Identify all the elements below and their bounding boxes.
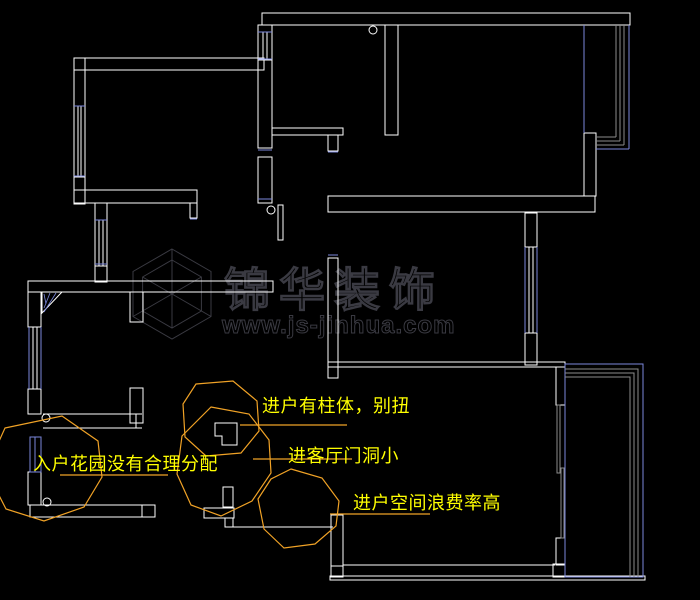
- annotation-door-small: 进客厅门洞小: [288, 446, 399, 466]
- annotation-column: 进户有柱体，别扭: [262, 396, 410, 416]
- cad-viewport[interactable]: 锦华装饰 www.js-jinhua.com: [0, 0, 700, 600]
- floor-plan-canvas[interactable]: 锦华装饰 www.js-jinhua.com: [0, 0, 700, 600]
- watermark-brand: 锦华装饰: [224, 264, 444, 316]
- annotation-entry-garden: 入户花园没有合理分配: [33, 454, 218, 474]
- annotation-space-waste: 进户空间浪费率高: [353, 493, 501, 513]
